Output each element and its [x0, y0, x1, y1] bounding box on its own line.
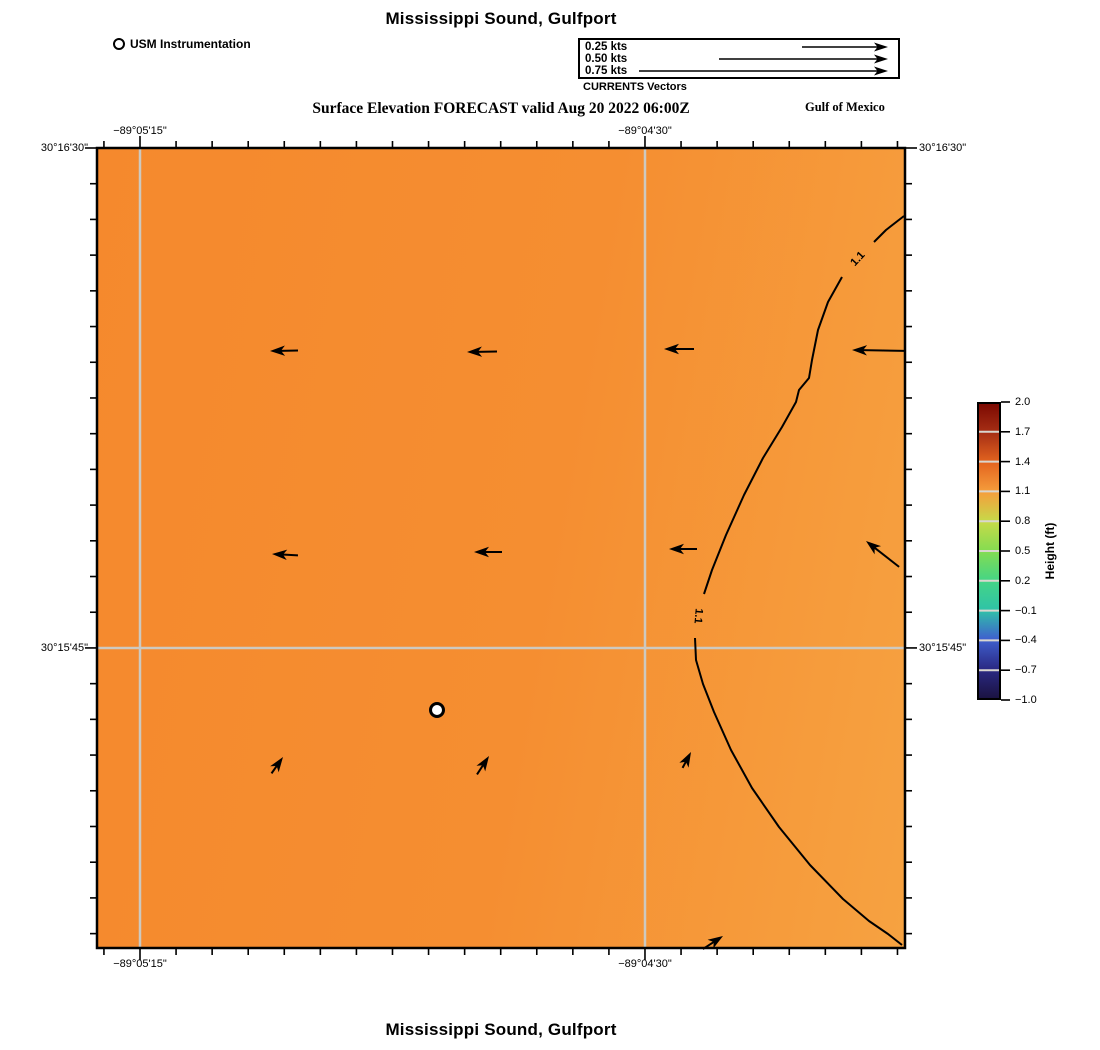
figure-title-top: Mississippi Sound, Gulfport — [97, 9, 905, 29]
lat-tick-label-left-2: 30°15'45" — [41, 642, 88, 654]
lon-tick-label-bottom-2: −89°04'30" — [618, 958, 672, 970]
region-label-gulf-of-mexico: Gulf of Mexico — [805, 100, 885, 115]
colorbar-tick-label: 0.2 — [1015, 575, 1030, 587]
colorbar-tick-label: 2.0 — [1015, 396, 1030, 408]
lat-tick-label-right-1: 30°16'30" — [919, 142, 966, 154]
colorbar-tick-label: 0.8 — [1015, 515, 1030, 527]
vector-legend-entry-025: 0.25 kts — [585, 41, 627, 53]
map-plot-area — [97, 148, 905, 948]
instrument-legend-label: USM Instrumentation — [130, 37, 251, 51]
lat-tick-label-right-2: 30°15'45" — [919, 642, 966, 654]
colorbar-axis-label: Height (ft) — [1043, 523, 1057, 580]
colorbar-tick-label: 0.5 — [1015, 545, 1030, 557]
colorbar-tick-label: −0.1 — [1015, 605, 1037, 617]
vector-legend-caption: CURRENTS Vectors — [583, 81, 687, 93]
colorbar-tick-label: 1.4 — [1015, 456, 1030, 468]
colorbar-tick-label: −0.4 — [1015, 634, 1037, 646]
instrument-circle-icon — [113, 38, 125, 50]
colorbar — [977, 402, 1001, 700]
lon-tick-label-top-1: −89°05'15" — [113, 125, 167, 137]
vector-legend-entry-075: 0.75 kts — [585, 65, 627, 77]
instrument-legend: USM Instrumentation — [113, 37, 251, 51]
figure-title-bottom: Mississippi Sound, Gulfport — [97, 1020, 905, 1040]
forecast-figure-page: { "title": { "top": "Mississippi Sound, … — [0, 0, 1100, 1050]
colorbar-tick-label: 1.1 — [1015, 485, 1030, 497]
forecast-subtitle: Surface Elevation FORECAST valid Aug 20 … — [97, 100, 905, 118]
colorbar-tick-label: 1.7 — [1015, 426, 1030, 438]
lon-tick-label-top-2: −89°04'30" — [618, 125, 672, 137]
lon-tick-label-bottom-1: −89°05'15" — [113, 958, 167, 970]
lat-tick-label-left-1: 30°16'30" — [41, 142, 88, 154]
colorbar-tick-label: −0.7 — [1015, 664, 1037, 676]
vector-legend-entry-050: 0.50 kts — [585, 53, 627, 65]
colorbar-tick-label: −1.0 — [1015, 694, 1037, 706]
